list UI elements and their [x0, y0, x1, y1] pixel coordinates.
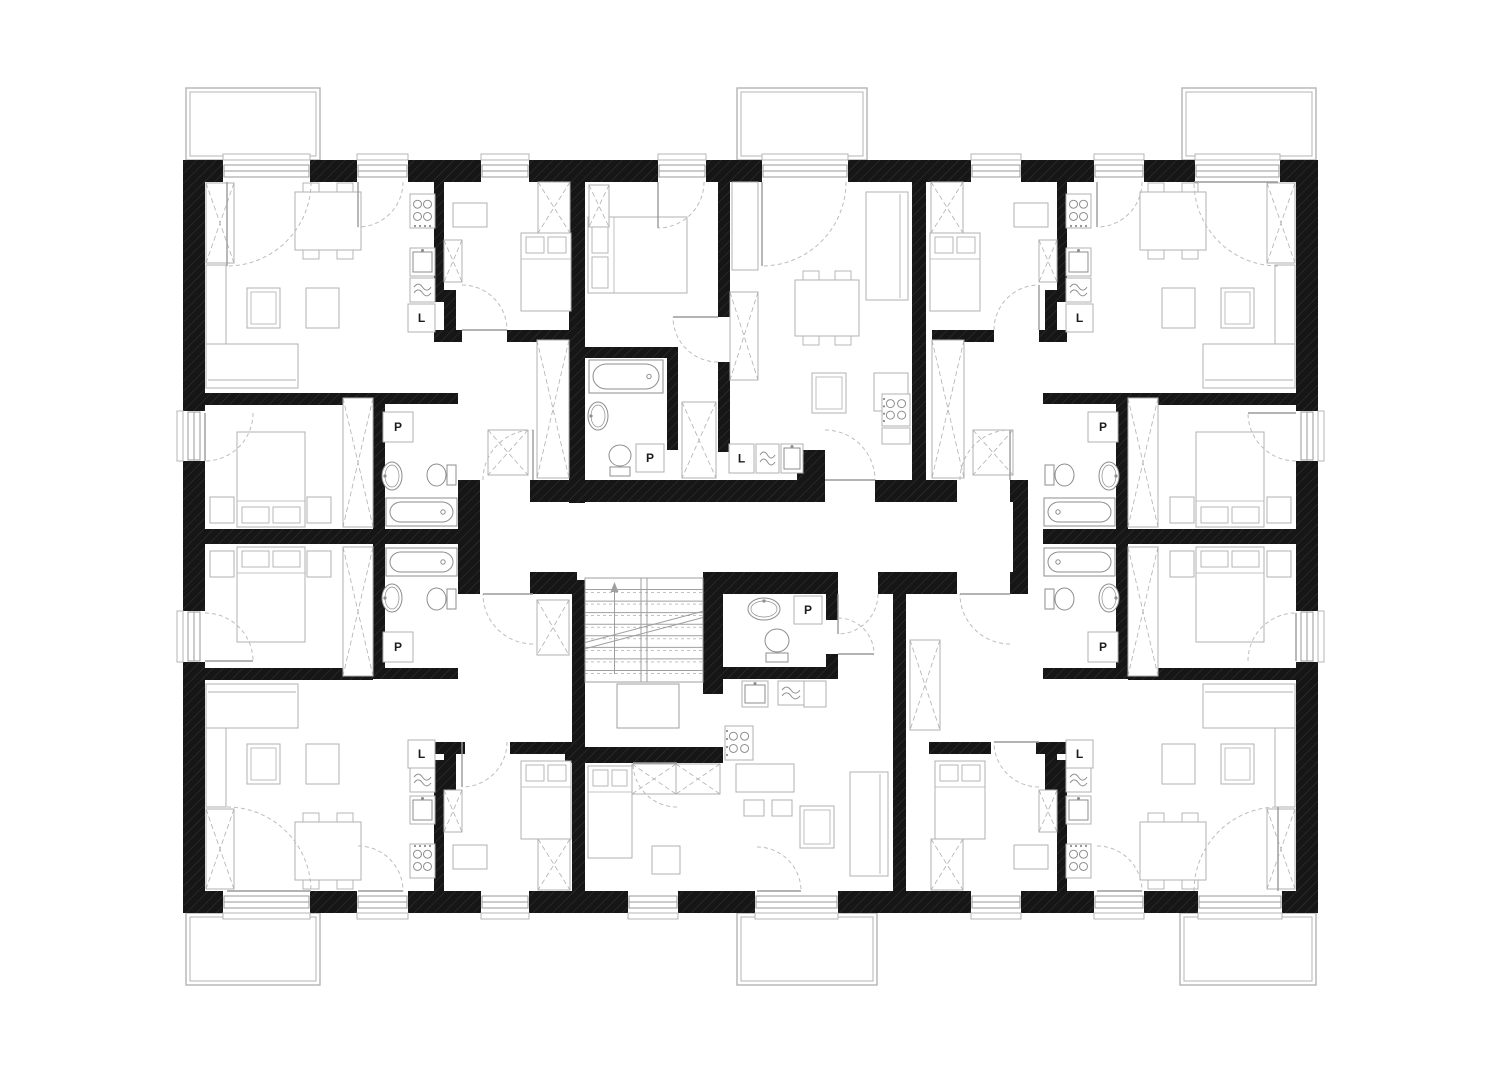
- door-swing: [462, 742, 507, 787]
- side-table: [210, 497, 234, 523]
- door-swing: [825, 430, 875, 480]
- door-swing: [757, 847, 801, 891]
- washer-label-box: P: [1088, 632, 1118, 662]
- door-swing: [673, 317, 718, 362]
- desk: [1014, 845, 1048, 869]
- side-table: [1162, 288, 1195, 328]
- wall: [718, 362, 730, 452]
- svg-text:L: L: [1076, 311, 1083, 325]
- wall: [183, 891, 1318, 913]
- wall: [510, 742, 572, 754]
- wall: [713, 572, 838, 594]
- kitchen-sink: [410, 796, 435, 824]
- side-table: [744, 800, 764, 816]
- stair-landing: [617, 684, 679, 728]
- wall: [1045, 290, 1057, 332]
- coffee-table: [247, 288, 280, 328]
- window: [1094, 891, 1144, 919]
- wardrobe: [444, 240, 462, 282]
- wall: [912, 182, 926, 502]
- wardrobe: [343, 547, 373, 676]
- balcony: [186, 913, 320, 985]
- washbasin: [1099, 462, 1119, 490]
- wall: [1043, 668, 1128, 679]
- washer-label-box: P: [636, 444, 664, 472]
- stove: [1066, 194, 1091, 228]
- wall: [1039, 330, 1067, 342]
- bed: [237, 547, 305, 642]
- bathtub: [589, 360, 663, 393]
- window: [223, 891, 310, 919]
- side-table: [210, 551, 234, 577]
- bed: [1196, 547, 1264, 642]
- counter: [804, 681, 826, 707]
- window: [481, 154, 529, 182]
- washer-label-box: P: [383, 632, 413, 662]
- counter: [882, 428, 910, 444]
- sofa: [866, 192, 908, 300]
- svg-text:L: L: [1076, 747, 1083, 761]
- wall: [183, 160, 205, 913]
- desk: [1014, 203, 1048, 227]
- wall: [1010, 572, 1028, 594]
- washbasin: [748, 598, 780, 620]
- wardrobe: [1128, 398, 1158, 527]
- counter: [736, 764, 794, 792]
- door-swing: [358, 182, 403, 227]
- balcony: [737, 88, 867, 160]
- toilet: [609, 445, 631, 476]
- side-table: [307, 497, 331, 523]
- sofa: [850, 772, 888, 876]
- balcony: [186, 88, 320, 160]
- wall: [205, 529, 458, 544]
- wardrobe: [537, 340, 569, 478]
- svg-text:L: L: [418, 747, 425, 761]
- water-heater: [756, 444, 779, 473]
- kitchen-sink: [781, 444, 803, 473]
- toilet: [1045, 464, 1074, 486]
- wall: [711, 667, 826, 679]
- wall: [530, 572, 577, 594]
- wall: [893, 572, 906, 913]
- window: [1094, 154, 1144, 182]
- window: [357, 891, 408, 919]
- toilet: [427, 588, 456, 610]
- side-table: [1162, 744, 1195, 784]
- water-heater: [1066, 278, 1091, 302]
- wardrobe: [206, 183, 234, 263]
- wall: [569, 182, 585, 503]
- desk: [453, 845, 487, 869]
- fridge-label-box: L: [1066, 304, 1093, 332]
- window: [1296, 611, 1324, 662]
- wardrobe: [730, 292, 758, 380]
- door-swing: [1194, 182, 1278, 266]
- door-swing: [762, 182, 846, 266]
- fridge-label-box: L: [408, 740, 435, 768]
- wall: [434, 330, 462, 342]
- window: [628, 891, 678, 919]
- stove: [1066, 844, 1091, 878]
- wardrobe: [932, 340, 964, 478]
- window: [223, 154, 310, 182]
- washbasin: [382, 584, 402, 612]
- kitchen-sink: [410, 248, 435, 276]
- window: [481, 891, 529, 919]
- wardrobe: [537, 600, 569, 655]
- bed: [935, 761, 985, 839]
- wardrobe: [538, 839, 570, 890]
- wardrobe: [931, 182, 963, 233]
- wardrobe: [1267, 809, 1295, 889]
- kitchen-sink: [1066, 796, 1091, 824]
- svg-text:P: P: [804, 603, 812, 617]
- window: [971, 154, 1021, 182]
- coffee-table: [812, 373, 846, 413]
- svg-text:P: P: [394, 640, 402, 654]
- wall: [875, 480, 957, 502]
- wall: [826, 654, 838, 679]
- side-table: [307, 551, 331, 577]
- door-swing: [994, 742, 1039, 787]
- wall: [1010, 480, 1028, 502]
- dining-table: [295, 813, 361, 889]
- bed: [237, 432, 305, 527]
- wardrobe: [632, 764, 676, 794]
- svg-text:L: L: [738, 452, 745, 466]
- door-swing: [1194, 807, 1278, 891]
- window: [1198, 891, 1282, 919]
- wall: [878, 572, 957, 594]
- toilet: [427, 464, 456, 486]
- door-swing: [462, 285, 507, 330]
- stairs-layer: [585, 578, 703, 728]
- side-table: [1170, 497, 1194, 523]
- side-table: [652, 846, 680, 874]
- sofa: [206, 684, 298, 728]
- side-table: [306, 744, 339, 784]
- toilet: [765, 629, 789, 662]
- wardrobe: [589, 185, 609, 227]
- washer-label-box: P: [1088, 412, 1118, 442]
- bed: [930, 233, 980, 311]
- counter: [732, 182, 758, 270]
- wall: [1043, 393, 1128, 404]
- wall: [373, 668, 458, 679]
- wall: [826, 594, 838, 620]
- wardrobe: [931, 839, 963, 890]
- dining-table: [795, 271, 859, 345]
- water-heater: [778, 681, 804, 705]
- sofa: [1203, 344, 1295, 388]
- wall: [373, 393, 458, 404]
- dining-table: [1140, 813, 1206, 889]
- wall: [530, 480, 825, 502]
- coffee-table: [1221, 288, 1254, 328]
- door-swing: [960, 594, 1010, 644]
- stove: [410, 844, 435, 878]
- wardrobe: [444, 790, 462, 832]
- window: [1195, 154, 1280, 182]
- wall: [444, 290, 456, 332]
- fridge-label-box: L: [1066, 740, 1093, 768]
- wall: [1043, 529, 1296, 544]
- svg-text:P: P: [646, 451, 654, 465]
- door-swing: [1097, 182, 1142, 227]
- bed: [521, 761, 571, 839]
- side-table: [772, 800, 792, 816]
- desk: [453, 203, 487, 227]
- wardrobe: [206, 809, 234, 889]
- staircase: [585, 578, 703, 728]
- stove: [725, 726, 753, 760]
- fridge-label-box: L: [729, 444, 754, 473]
- window: [177, 411, 205, 461]
- side-table: [1267, 497, 1291, 523]
- wardrobe: [682, 402, 716, 478]
- water-heater: [410, 278, 435, 302]
- svg-text:P: P: [394, 420, 402, 434]
- window: [755, 891, 838, 919]
- wall: [1045, 754, 1057, 790]
- bathtub: [386, 548, 457, 576]
- floor-plan-page: LLPLPPPPLPL: [0, 0, 1500, 1080]
- wall: [929, 742, 991, 754]
- svg-text:P: P: [1099, 640, 1107, 654]
- sofa: [206, 344, 298, 388]
- wall: [1036, 742, 1067, 754]
- washbasin: [382, 462, 402, 490]
- kitchen-sink: [1066, 248, 1091, 276]
- dining-table: [295, 183, 361, 259]
- window: [177, 611, 205, 662]
- coffee-table: [1221, 744, 1254, 784]
- door-swing: [838, 618, 874, 654]
- window: [971, 891, 1021, 919]
- window: [357, 154, 408, 182]
- door-swing: [994, 285, 1039, 330]
- wardrobe: [538, 182, 570, 233]
- wardrobe: [910, 640, 940, 730]
- door-swing: [838, 594, 878, 634]
- wardrobe: [973, 430, 1013, 475]
- side-table: [1170, 551, 1194, 577]
- svg-text:L: L: [418, 311, 425, 325]
- door-swing: [1097, 846, 1142, 891]
- wall: [585, 347, 678, 358]
- bathtub: [1044, 548, 1115, 576]
- bathtub: [386, 498, 457, 526]
- sofa: [1203, 684, 1295, 728]
- wardrobe: [676, 764, 720, 794]
- side-table: [306, 288, 339, 328]
- wall: [565, 747, 723, 763]
- washbasin: [588, 402, 608, 430]
- bed: [521, 233, 571, 311]
- coffee-table: [800, 806, 834, 848]
- wardrobe: [1267, 183, 1295, 263]
- wall: [718, 182, 730, 317]
- balcony: [1182, 88, 1316, 160]
- side-table: [1267, 551, 1291, 577]
- wardrobe: [1128, 547, 1158, 676]
- washbasin: [1099, 584, 1119, 612]
- wall: [458, 480, 480, 594]
- wardrobe: [1039, 790, 1057, 832]
- bed: [588, 217, 687, 293]
- door-swing: [358, 846, 403, 891]
- water-heater: [410, 768, 435, 792]
- wall: [183, 160, 1318, 182]
- dining-table: [1140, 183, 1206, 259]
- fridge-label-box: L: [408, 304, 435, 332]
- water-heater: [1066, 768, 1091, 792]
- wall: [572, 580, 585, 913]
- wall: [434, 742, 465, 754]
- stove: [882, 394, 910, 426]
- wall: [667, 347, 678, 450]
- toilet: [1045, 588, 1074, 610]
- floor-plan-drawing: LLPLPPPPLPL: [0, 0, 1500, 1080]
- window: [658, 154, 706, 182]
- bed: [1196, 432, 1264, 527]
- washer-label-box: P: [794, 596, 822, 624]
- bed: [588, 766, 632, 858]
- washer-label-box: P: [383, 412, 413, 442]
- kitchen-sink: [742, 681, 768, 707]
- coffee-table: [247, 744, 280, 784]
- wardrobe: [343, 398, 373, 527]
- svg-text:P: P: [1099, 420, 1107, 434]
- window: [762, 154, 848, 182]
- bathtub: [1044, 498, 1115, 526]
- window: [1296, 411, 1324, 461]
- balcony: [737, 913, 877, 985]
- wall: [1296, 160, 1318, 913]
- stove: [410, 194, 435, 228]
- door-swing: [483, 594, 533, 644]
- balcony: [1180, 913, 1316, 985]
- wardrobe: [1039, 240, 1057, 282]
- wall: [444, 754, 456, 790]
